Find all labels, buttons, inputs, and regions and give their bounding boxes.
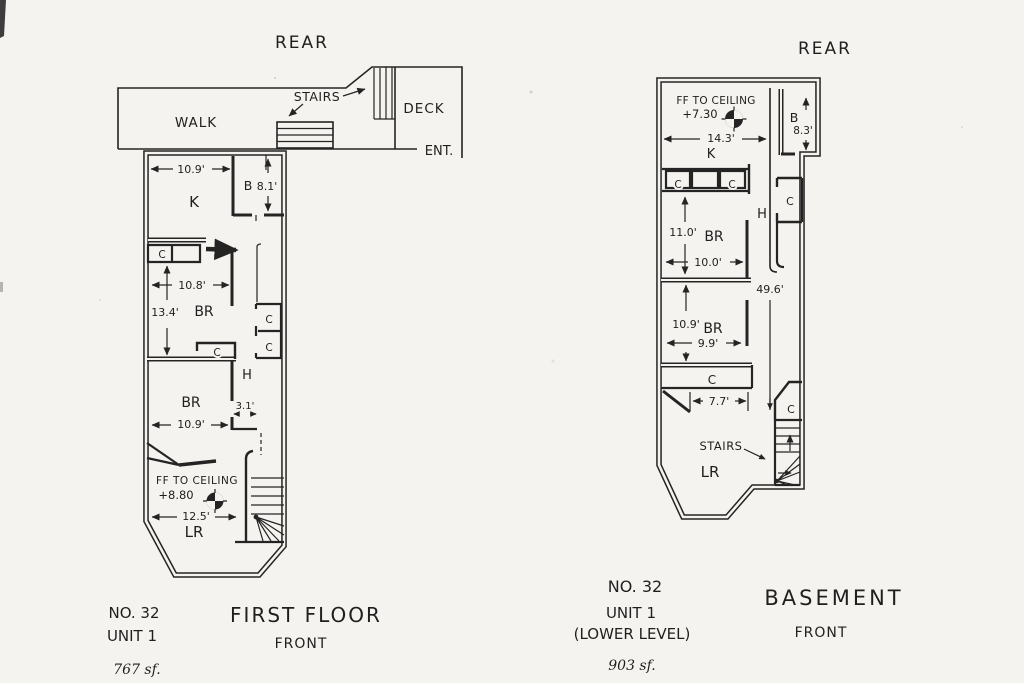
- plan-subtitle: FRONT: [795, 625, 848, 641]
- room-bedroom-mid: BR: [704, 229, 724, 245]
- closet-label: C: [213, 347, 220, 359]
- dim-kitchen-width: 14.3': [707, 132, 735, 145]
- room-living: LR: [701, 463, 720, 481]
- dim-hall-width: 3.1': [236, 401, 255, 412]
- closet-label: C: [674, 179, 681, 191]
- deck-label: DECK: [403, 101, 444, 117]
- dim-bedroom-mid-depth: 11.0': [669, 226, 697, 239]
- room-hall: H: [757, 207, 767, 222]
- floor-plan-canvas: REAR WALK STAIRS DECK ENT. 10.9' K B 8.1…: [0, 0, 1024, 683]
- plan-number: NO. 32: [108, 604, 159, 622]
- closet-label: C: [787, 403, 795, 416]
- ceiling-note-line2: +7.30: [682, 107, 717, 121]
- dim-bedroom-front-depth: 10.9': [672, 318, 700, 331]
- room-bath: B: [244, 178, 253, 193]
- plan-level: (LOWER LEVEL): [574, 625, 691, 643]
- entry-label: ENT.: [425, 144, 453, 159]
- dim-bath-depth: 8.3': [793, 125, 813, 137]
- room-bedroom-front: BR: [181, 395, 201, 411]
- rear-label: REAR: [275, 33, 329, 53]
- exterior-stairs-label: STAIRS: [294, 89, 340, 104]
- basement-dimension-arrows: [664, 98, 806, 401]
- rear-label: REAR: [798, 39, 852, 59]
- closet-label: C: [728, 179, 735, 191]
- room-living: LR: [185, 523, 204, 541]
- dim-bath-depth: 8.1': [257, 180, 278, 193]
- room-bedroom-mid: BR: [194, 304, 214, 320]
- plan-area: 767 sf.: [113, 662, 161, 678]
- plan-number: NO. 32: [608, 577, 662, 596]
- plan-unit: UNIT 1: [107, 627, 157, 645]
- room-bath: B: [790, 110, 799, 125]
- basement-stairs: [744, 420, 800, 485]
- plan-area: 903 sf.: [608, 658, 656, 674]
- closet-label: C: [158, 249, 165, 261]
- plan-subtitle: FRONT: [275, 636, 328, 652]
- room-bedroom-front: BR: [703, 321, 723, 337]
- dim-bedroom-mid-width: 10.8': [178, 279, 206, 292]
- room-kitchen: K: [189, 193, 200, 211]
- plan-title: FIRST FLOOR: [230, 603, 382, 627]
- dim-bedroom-mid-depth: 13.4': [151, 306, 179, 319]
- dim-bedroom-mid-width: 10.0': [694, 256, 722, 269]
- dim-bedroom-front-width: 10.9': [177, 418, 205, 431]
- closet-label: C: [265, 314, 272, 326]
- closet-label: C: [708, 373, 716, 387]
- plan-title: BASEMENT: [764, 586, 903, 610]
- ceiling-note-line1: FF TO CEILING: [676, 95, 755, 107]
- ceiling-note-line2: +8.80: [158, 488, 193, 502]
- first-floor-stairs: [235, 451, 284, 542]
- dim-kitchen-width: 10.9': [177, 163, 205, 176]
- dim-closet-width: 7.7': [709, 395, 730, 408]
- exterior-stairs-treads: [277, 68, 395, 149]
- dim-bedroom-front-width: 9.9': [698, 337, 719, 350]
- plan-unit: UNIT 1: [606, 604, 656, 622]
- basement-plan: REAR FF TO CEILING +7.30 14.3' K B 8.3' …: [574, 39, 904, 674]
- first-floor-plan: REAR WALK STAIRS DECK ENT. 10.9' K B 8.1…: [107, 33, 462, 678]
- dim-living-width: 12.5': [182, 510, 210, 523]
- walk-label: WALK: [175, 115, 217, 131]
- ceiling-note-line1: FF TO CEILING: [156, 475, 238, 487]
- benchmark-symbol: [722, 107, 747, 132]
- scanned-floor-plan-sheet: REAR WALK STAIRS DECK ENT. 10.9' K B 8.1…: [0, 0, 1024, 683]
- room-hall: H: [242, 368, 252, 383]
- closet-label: C: [265, 342, 272, 354]
- stairs-label: STAIRS: [700, 439, 743, 453]
- closet-label: C: [786, 195, 794, 208]
- room-kitchen: K: [707, 147, 716, 162]
- dim-overall-depth: 49.6': [756, 283, 784, 296]
